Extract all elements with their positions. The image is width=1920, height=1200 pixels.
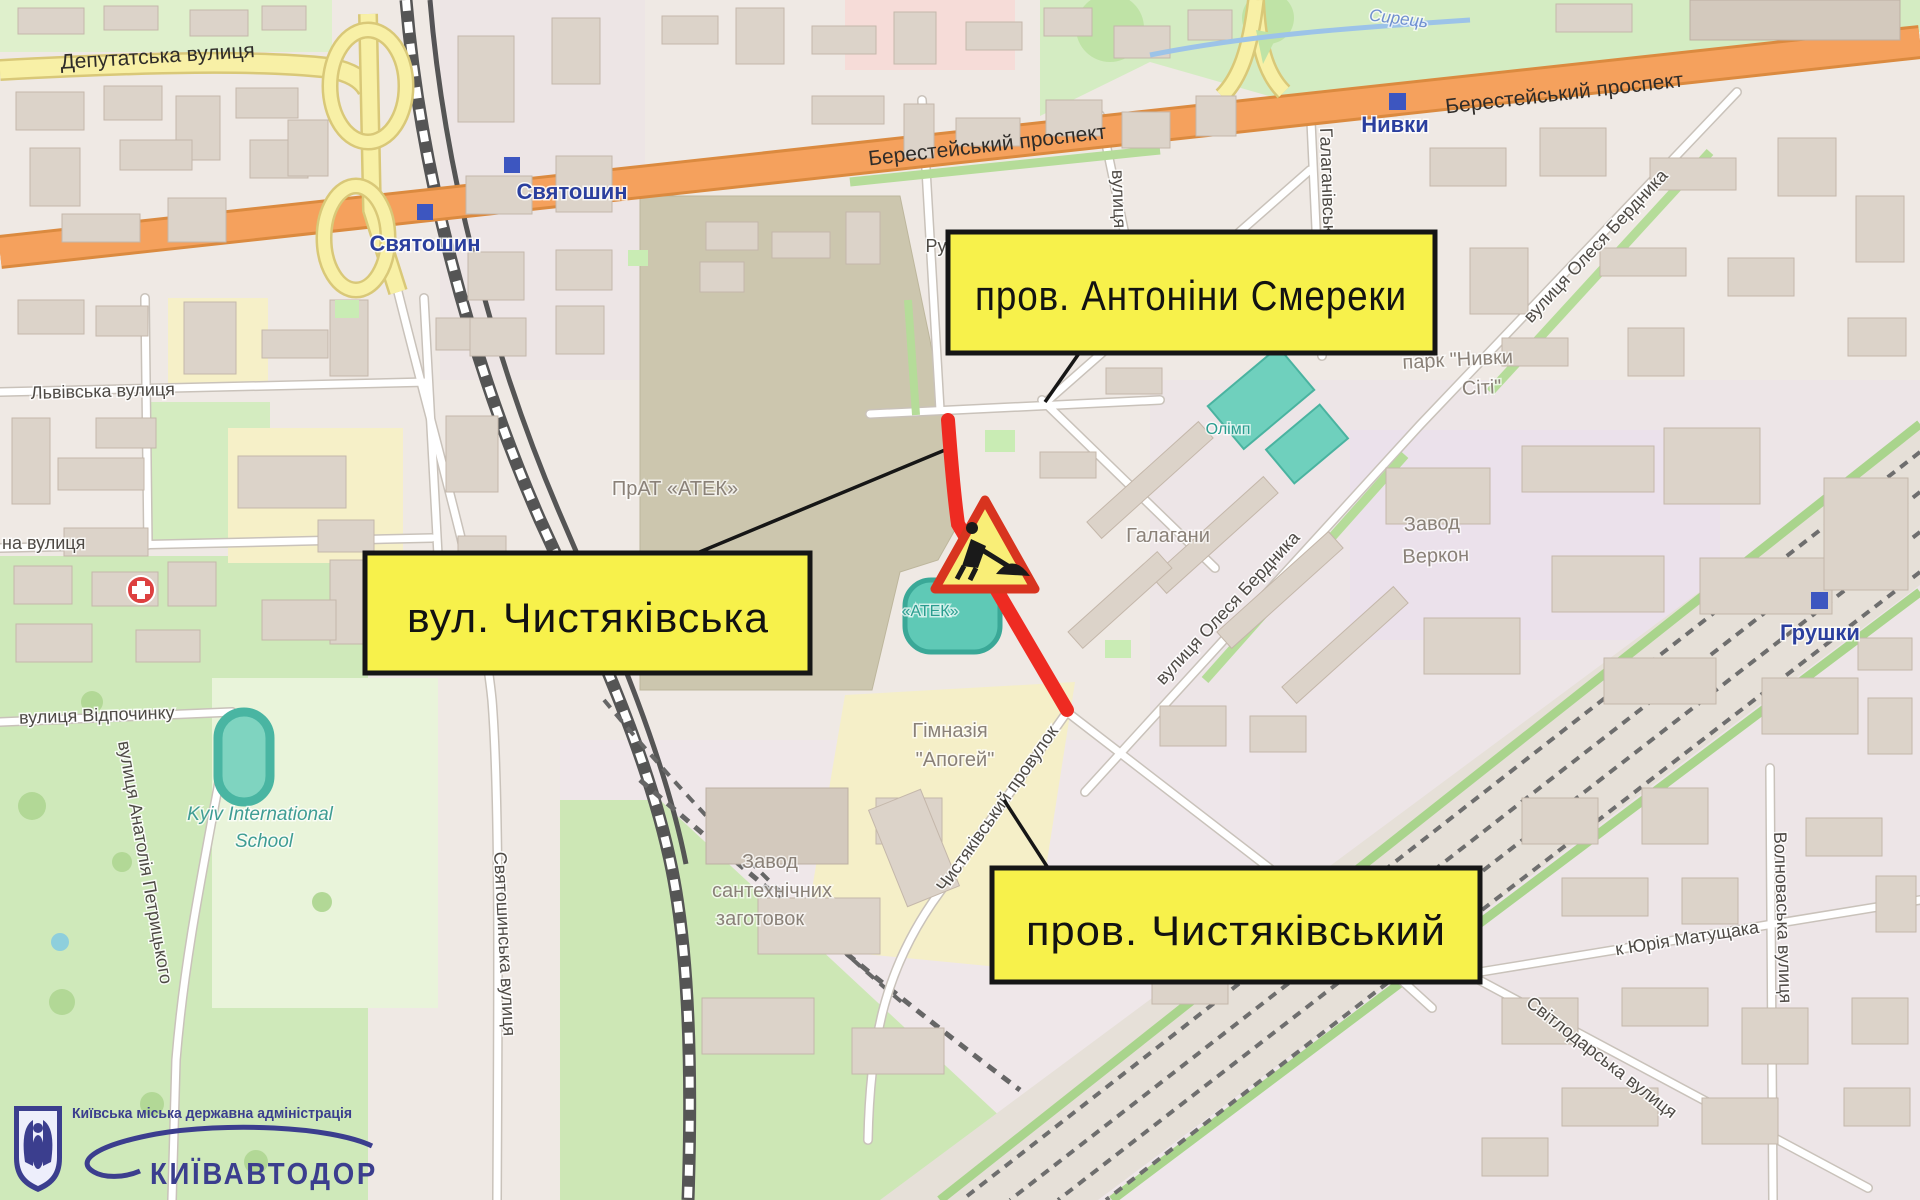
label-himnaziia-2: "Апогей" xyxy=(916,749,995,771)
label-zavod-san-3: заготовок xyxy=(716,908,804,930)
metro-station-icon xyxy=(1389,93,1406,110)
label-halahanivska: Галаганівська xyxy=(1316,127,1340,244)
label-metro-nyvky: Нивки xyxy=(1361,112,1428,137)
annotation-box-chystiakivskyi: пров. Чистяківський xyxy=(992,868,1480,982)
label-olimp: Олімп xyxy=(1206,421,1251,438)
metro-station-icon xyxy=(504,157,520,173)
label-himnaziia-1: Гімназія xyxy=(912,720,987,742)
annotation-box-antoniny-label: пров. Антоніни Смереки xyxy=(975,272,1407,319)
label-lvivska: Львівська вулиця xyxy=(31,379,176,403)
label-zavod-san-2: сантехнічних xyxy=(712,880,832,902)
label-halahany: Галагани xyxy=(1126,525,1210,547)
map-canvas[interactable]: Депутатська вулиця Берестейський проспек… xyxy=(0,0,1920,1200)
hospital-icon xyxy=(127,576,155,604)
label-school-1: Kyiv International xyxy=(187,804,334,825)
annotation-box-antoniny: пров. Антоніни Смереки xyxy=(948,232,1435,353)
label-metro-sviatoshyn-2: Святошин xyxy=(369,231,480,256)
label-metro-sviatoshyn-1: Святошин xyxy=(516,179,627,204)
label-atek-stadium: «АТЕК» xyxy=(902,603,959,620)
label-verkon-1: Завод xyxy=(1403,512,1460,536)
label-atek: ПрАТ «АТЕК» xyxy=(612,478,738,500)
logo-admin-text: Київська міська державна адміністрація xyxy=(72,1105,352,1122)
label-na-vulytsia: на вулиця xyxy=(2,533,85,553)
metro-station-icon xyxy=(417,204,433,220)
label-park-nyvky-2: Сіті" xyxy=(1461,376,1502,400)
label-vulytsia-partial: вулиця xyxy=(1108,169,1130,228)
metro-station-icon xyxy=(1811,592,1828,609)
annotation-box-chystiakivska: вул. Чистяківська xyxy=(365,553,810,673)
annotation-box-chystiakivskyi-label: пров. Чистяківський xyxy=(1026,907,1446,954)
label-zavod-san-1: Завод xyxy=(742,851,798,873)
label-metro-hrushky: Грушки xyxy=(1780,620,1860,645)
logo-name-text: КИЇВАВТОДОР xyxy=(150,1156,378,1191)
annotation-box-chystiakivska-label: вул. Чистяківська xyxy=(407,594,769,641)
label-verkon-2: Веркон xyxy=(1402,544,1469,568)
label-school-2: School xyxy=(235,831,294,852)
label-ru-partial: Ру xyxy=(925,236,946,256)
